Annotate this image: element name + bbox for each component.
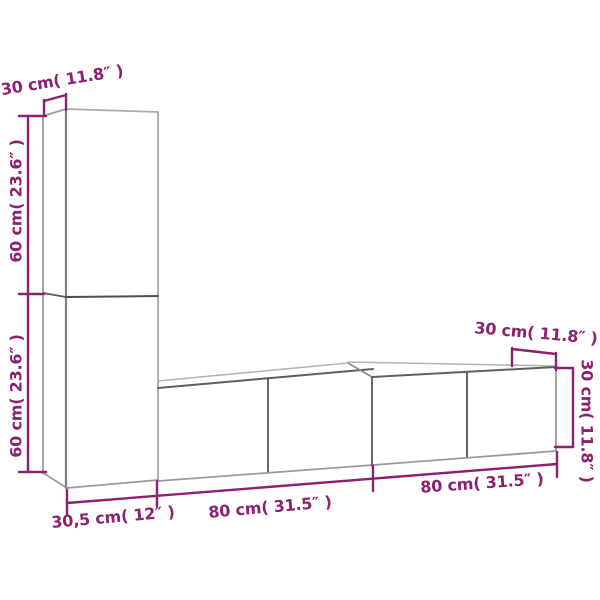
- dimension-diagram: 30 cm( 11.8″ ) 60 cm( 23.6″ ) 60 cm( 23.…: [0, 0, 600, 600]
- tv-unit-left-back-top-edge: [158, 363, 348, 381]
- tall-cabinet-division-side: [43, 293, 66, 297]
- dim-unit-right-height-bracket: [555, 368, 573, 447]
- tv-unit-left: [158, 363, 373, 481]
- tall-cabinet-front-bottom-edge: [67, 480, 158, 488]
- tv-unit-right: [348, 362, 556, 466]
- tall-cabinet-front-top-edge: [66, 109, 158, 112]
- tall-cabinet: [43, 109, 158, 488]
- tv-unit-left-bottom-edge: [158, 465, 373, 481]
- dim-line: [44, 95, 66, 101]
- dim-label-tall-lower-height: 60 cm( 23.6″ ): [7, 334, 26, 458]
- tv-unit-right-back-top-edge: [348, 362, 556, 366]
- dim-label-unit-right-height: 30 cm( 11.8″ ): [578, 359, 597, 483]
- tall-cabinet-side-bottom-edge: [43, 473, 67, 488]
- dim-line: [512, 349, 556, 354]
- tv-unit-right-bottom-edge: [373, 451, 556, 465]
- dim-label-tall-upper-height: 60 cm( 23.6″ ): [7, 139, 26, 263]
- tv-unit-right-front-top-edge: [372, 367, 556, 377]
- tall-cabinet-division-front: [66, 296, 158, 297]
